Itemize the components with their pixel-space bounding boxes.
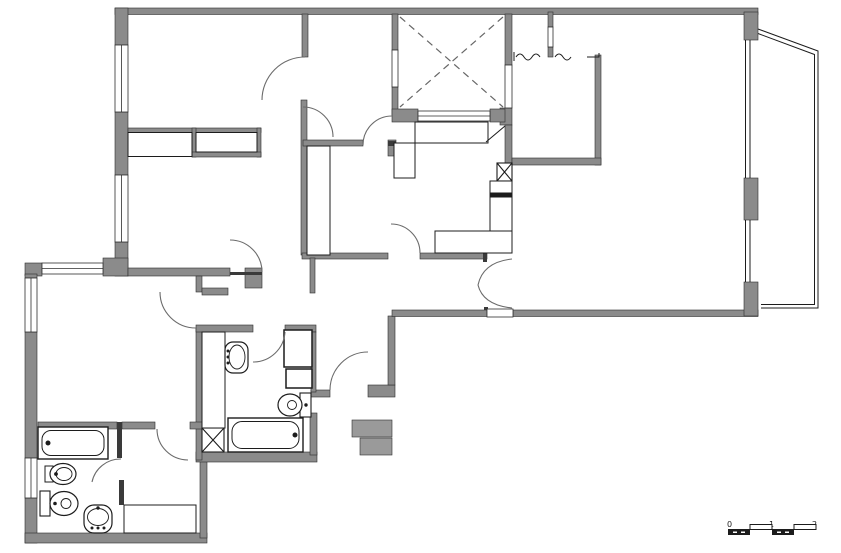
bidet-icon — [45, 464, 76, 485]
sink-hole — [103, 527, 105, 529]
scale-segment-white — [794, 525, 816, 530]
bedroom1-wall-right — [302, 14, 308, 57]
closet-left — [128, 133, 192, 157]
dressing-partition — [119, 480, 124, 505]
toilet-hinge — [305, 404, 307, 406]
stair-hall-wall-right — [595, 55, 601, 165]
bathtub-basin — [232, 422, 299, 449]
toilet-inner — [288, 401, 297, 410]
exterior-wall-upper-bottom — [392, 310, 487, 317]
shaft-window — [392, 50, 398, 87]
toilet-hinge — [54, 502, 57, 505]
exterior-wall-left-lower — [25, 274, 37, 278]
kitchen-wall-right — [505, 125, 512, 163]
exterior-wall-left-upper — [115, 8, 128, 45]
sink-basin — [229, 345, 245, 369]
corridor-opening — [487, 309, 513, 317]
scale-label-0: 0 — [727, 520, 732, 529]
bidet-inner — [56, 468, 72, 481]
exterior-wall-lower-top — [128, 268, 230, 276]
exterior-wall-dressing-right — [200, 458, 207, 538]
exterior-wall-upper-bottom — [513, 310, 758, 317]
sink-tap — [97, 507, 99, 509]
kitchen-cabinet-divider — [490, 193, 512, 197]
elevator-door — [505, 65, 512, 108]
corridor-nib-wall — [202, 288, 228, 295]
toilet-tank — [40, 491, 50, 516]
hall-wall-left — [301, 100, 307, 255]
kitchen-wall-bottom — [420, 253, 487, 259]
stair-wall — [548, 47, 553, 57]
scale-segment-black — [728, 529, 750, 535]
exterior-wall-corridor-right — [388, 316, 395, 385]
door-threshold — [230, 272, 262, 275]
sink-hole — [91, 527, 93, 529]
exterior-wall-service-door-side — [368, 385, 395, 397]
wall-junction-block — [103, 258, 128, 276]
dressing-closet — [124, 505, 196, 533]
scale-tick — [741, 532, 745, 534]
exterior-wall-bath-bottom — [196, 452, 317, 462]
toilet-icon — [40, 491, 78, 516]
corridor-wall-stub — [310, 258, 315, 293]
shaft-wall-bottom — [490, 109, 505, 122]
stair-landing-door — [548, 27, 553, 47]
shaft-wall-bottom — [392, 109, 418, 122]
sink-hole — [227, 356, 229, 358]
bidet-tap — [55, 473, 58, 476]
kitchen-tall-cabinet — [490, 181, 512, 232]
sink-hole — [97, 527, 99, 529]
exterior-step — [352, 420, 392, 437]
exterior-step — [360, 438, 392, 455]
exterior-wall-step — [310, 413, 317, 455]
duct-strip — [202, 332, 225, 428]
exterior-wall-right-block — [744, 282, 758, 316]
stair-hall-wall-bottom — [512, 158, 601, 165]
bathroom1-wall-top — [190, 422, 202, 429]
stair-wall — [548, 12, 553, 27]
closet-band-bottom-wall — [192, 152, 261, 157]
closet-box-lower — [286, 369, 312, 388]
scale-tick — [777, 532, 781, 534]
scale-segment-white — [750, 525, 772, 530]
exterior-wall-top — [115, 8, 758, 15]
door-jamb-nib — [483, 253, 487, 262]
exterior-wall-left-lower — [25, 332, 37, 458]
shaft-wall-left — [392, 14, 398, 50]
tub-partition — [117, 422, 122, 458]
hall-closet-strip — [307, 146, 330, 255]
scale-tick — [733, 532, 737, 534]
toilet-icon — [278, 393, 311, 417]
vestibule-wall — [303, 140, 363, 146]
bathtub-drain — [293, 433, 297, 437]
bathtub-drain — [46, 441, 50, 445]
bedroom3-dressing-wall-right — [196, 328, 202, 460]
sink-hole — [227, 350, 229, 352]
closet-right — [196, 133, 257, 153]
exterior-wall-left-upper — [115, 112, 128, 175]
toilet-inner — [61, 499, 71, 509]
bathtub-basin — [42, 431, 104, 456]
bedroom3-wall-right — [196, 276, 202, 292]
wall-pillar — [245, 268, 262, 288]
sink-icon — [225, 342, 248, 373]
closet-box-upper — [284, 330, 312, 367]
floor-plan: 0 1 2 — [0, 0, 841, 553]
sink-basin — [88, 509, 109, 526]
floor-plan-drawing: 0 1 2 — [0, 0, 841, 553]
kitchen-counter-left — [394, 143, 415, 178]
bathroom1-wall-top — [122, 422, 155, 429]
kitchen-counter-top — [415, 122, 488, 143]
bathtub-icon — [38, 427, 108, 459]
bathroom2-wall-top — [196, 325, 253, 332]
shaft-wall-right — [505, 14, 512, 65]
sink-icon — [84, 505, 112, 533]
exterior-wall-right-block — [744, 12, 758, 40]
bathtub-icon — [228, 418, 303, 452]
scale-segment-black — [772, 529, 794, 535]
kitchen-counter-bottom — [435, 231, 512, 253]
exterior-wall-bottom — [25, 533, 207, 543]
scale-tick — [785, 532, 789, 534]
exterior-wall-right-block — [744, 178, 758, 220]
sink-hole — [227, 362, 229, 364]
